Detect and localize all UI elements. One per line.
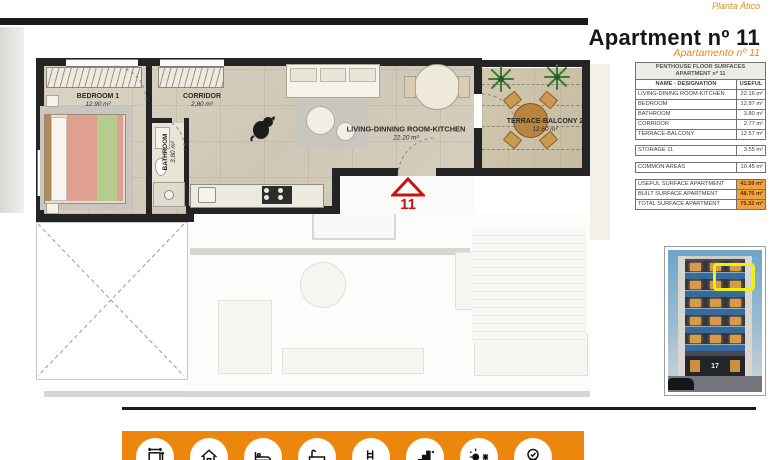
room-label-bedroom: BEDROOM 1 12.90 m²: [77, 93, 119, 109]
room-label-bathroom: BATHROOM 3,80 m²: [162, 134, 178, 171]
room-label-living: LIVING-DINNING ROOM-KITCHEN 22.20 m²: [347, 126, 466, 143]
brochure-page: Planta Ático Apartment nº 11 Apartamento…: [0, 0, 770, 460]
car-silhouette: [668, 378, 694, 390]
room-name: TERRACE-BALCONY 2: [507, 118, 584, 125]
street-number: 17: [711, 363, 719, 370]
table-row: TERRACE-BALCONY 12.57 m²: [635, 130, 766, 140]
building-side-column: [678, 256, 685, 376]
unit-highlight-box: [713, 263, 755, 291]
room-area: 3,80 m²: [170, 141, 177, 163]
entrance-marker-icon: [391, 177, 425, 197]
col-useful: USEFUL: [737, 80, 765, 89]
building-ground-floor: 17: [685, 356, 745, 376]
common-areas-row: COMMON AREAS 10.45 m²: [635, 162, 766, 173]
photo-street: [668, 376, 762, 392]
table-header-row: NAME - DESIGNATION USEFUL: [635, 80, 766, 90]
room-name: BATHROOM: [162, 134, 169, 171]
room-label-corridor: CORRIDOR 2,80 m²: [183, 93, 221, 109]
room-area: 2,80 m²: [191, 101, 213, 108]
table-row: CORRIDOR 2.77 m²: [635, 120, 766, 130]
table-title-line1: PENTHOUSE FLOOR SURFACES: [636, 64, 765, 71]
table-title-line2: APARTMENT nº 11: [636, 71, 765, 78]
col-name-designation: NAME - DESIGNATION: [636, 80, 737, 89]
footer-divider-line: [122, 407, 756, 410]
room-name: BEDROOM 1: [77, 93, 119, 100]
table-row: BATHROOM 3.80 m²: [635, 110, 766, 120]
room-name: CORRIDOR: [183, 93, 221, 100]
building-photo: 17: [664, 246, 766, 396]
room-area: 22.20 m²: [393, 135, 418, 142]
surfaces-table: PENTHOUSE FLOOR SURFACES APARTMENT nº 11…: [635, 62, 766, 210]
surfaces-table-title: PENTHOUSE FLOOR SURFACES APARTMENT nº 11: [635, 62, 766, 80]
total-row: USEFUL SURFACE APARTMENT 41.59 m²: [635, 179, 766, 190]
storage-row: STORAGE 11 3.55 m²: [635, 145, 766, 156]
room-name: LIVING-DINNING ROOM-KITCHEN: [347, 125, 466, 134]
room-label-terrace: TERRACE-BALCONY 2 12,60 m²: [507, 118, 584, 134]
room-area: 12,60 m²: [532, 126, 557, 133]
total-row: TOTAL SURFACE APARTMENT 75.32 m²: [635, 200, 766, 210]
room-area: 12.90 m²: [85, 101, 110, 108]
table-row: BEDROOM 12.87 m²: [635, 100, 766, 110]
total-row: BUILT SURFACE APARTMENT 48.75 m²: [635, 190, 766, 200]
entrance-number: 11: [394, 196, 422, 213]
table-row: LIVING-DINING ROOM-KITCHEN 22.16 m²: [635, 90, 766, 100]
